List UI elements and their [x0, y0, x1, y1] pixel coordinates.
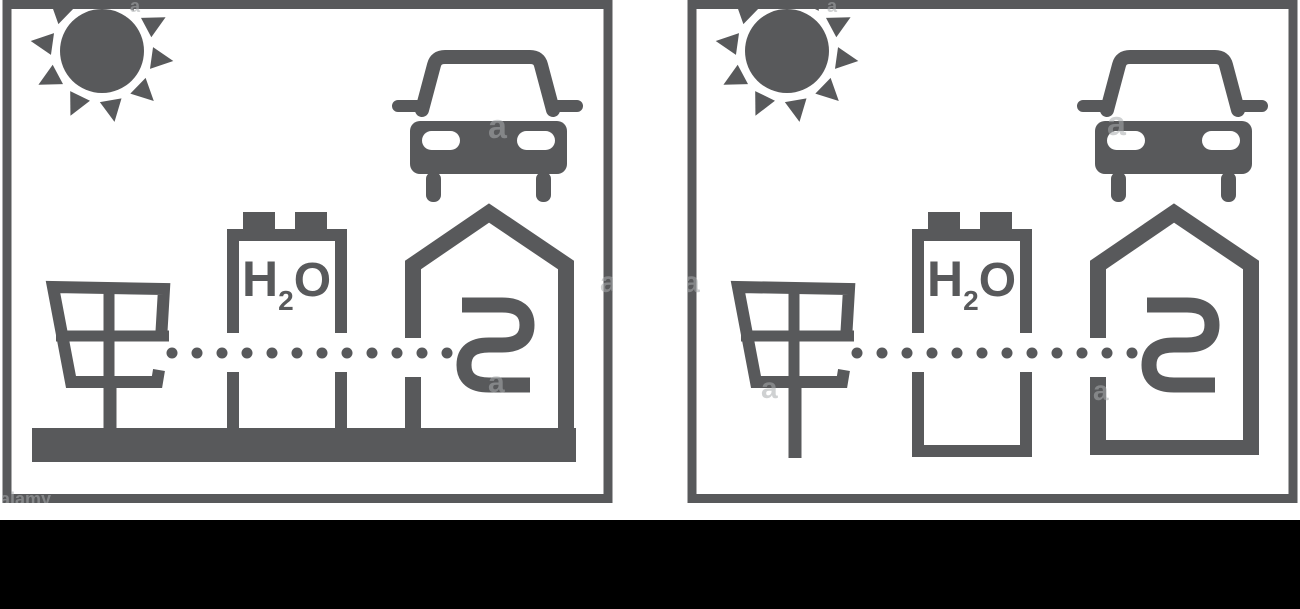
- watermark-a: a: [687, 266, 700, 299]
- sun-icon: [29, 0, 175, 124]
- watermark-a: a: [600, 266, 613, 299]
- stock-image-page: H2O a a a a alamy: [0, 0, 1300, 609]
- house-icon: [1090, 213, 1259, 455]
- watermark-a: a: [488, 108, 508, 146]
- car-headlight-left: [422, 131, 460, 150]
- watermark-a: a: [827, 0, 838, 16]
- watermark-brand: alamy: [2, 489, 51, 503]
- watermark-a: a: [488, 366, 505, 399]
- solar-panel-icon: [53, 287, 169, 432]
- panel-right-solar-heating-diagram: H2O a a a a a: [687, 0, 1298, 503]
- watermark-a: a: [761, 372, 778, 405]
- sun-icon: [714, 0, 860, 124]
- footer-bar: alamy Image ID: 2NK1JHH www.alamy.com: [0, 520, 1300, 609]
- house-icon: [413, 213, 566, 450]
- watermark-a: a: [1107, 105, 1127, 143]
- dotted-flow-line: [167, 348, 453, 359]
- car-headlight-right: [517, 131, 555, 150]
- tank-label-h2o: H2O: [927, 251, 1016, 316]
- tank-label-h2o: H2O: [242, 251, 331, 316]
- house-floor: [1090, 440, 1259, 455]
- heating-coil-icon: [1147, 305, 1215, 385]
- solar-panel-icon: [738, 287, 854, 458]
- watermark-a: a: [130, 0, 141, 16]
- dotted-flow-line: [852, 348, 1138, 359]
- water-tank-icon: H2O: [227, 212, 347, 440]
- tank-bottom: [912, 445, 1032, 457]
- water-tank-icon: H2O: [912, 212, 1032, 457]
- watermark-a: a: [1093, 375, 1109, 406]
- car-headlight-right: [1202, 131, 1240, 150]
- panel-left-solar-heating-diagram: H2O a a a a alamy: [2, 0, 613, 503]
- ground-bar: [32, 428, 576, 462]
